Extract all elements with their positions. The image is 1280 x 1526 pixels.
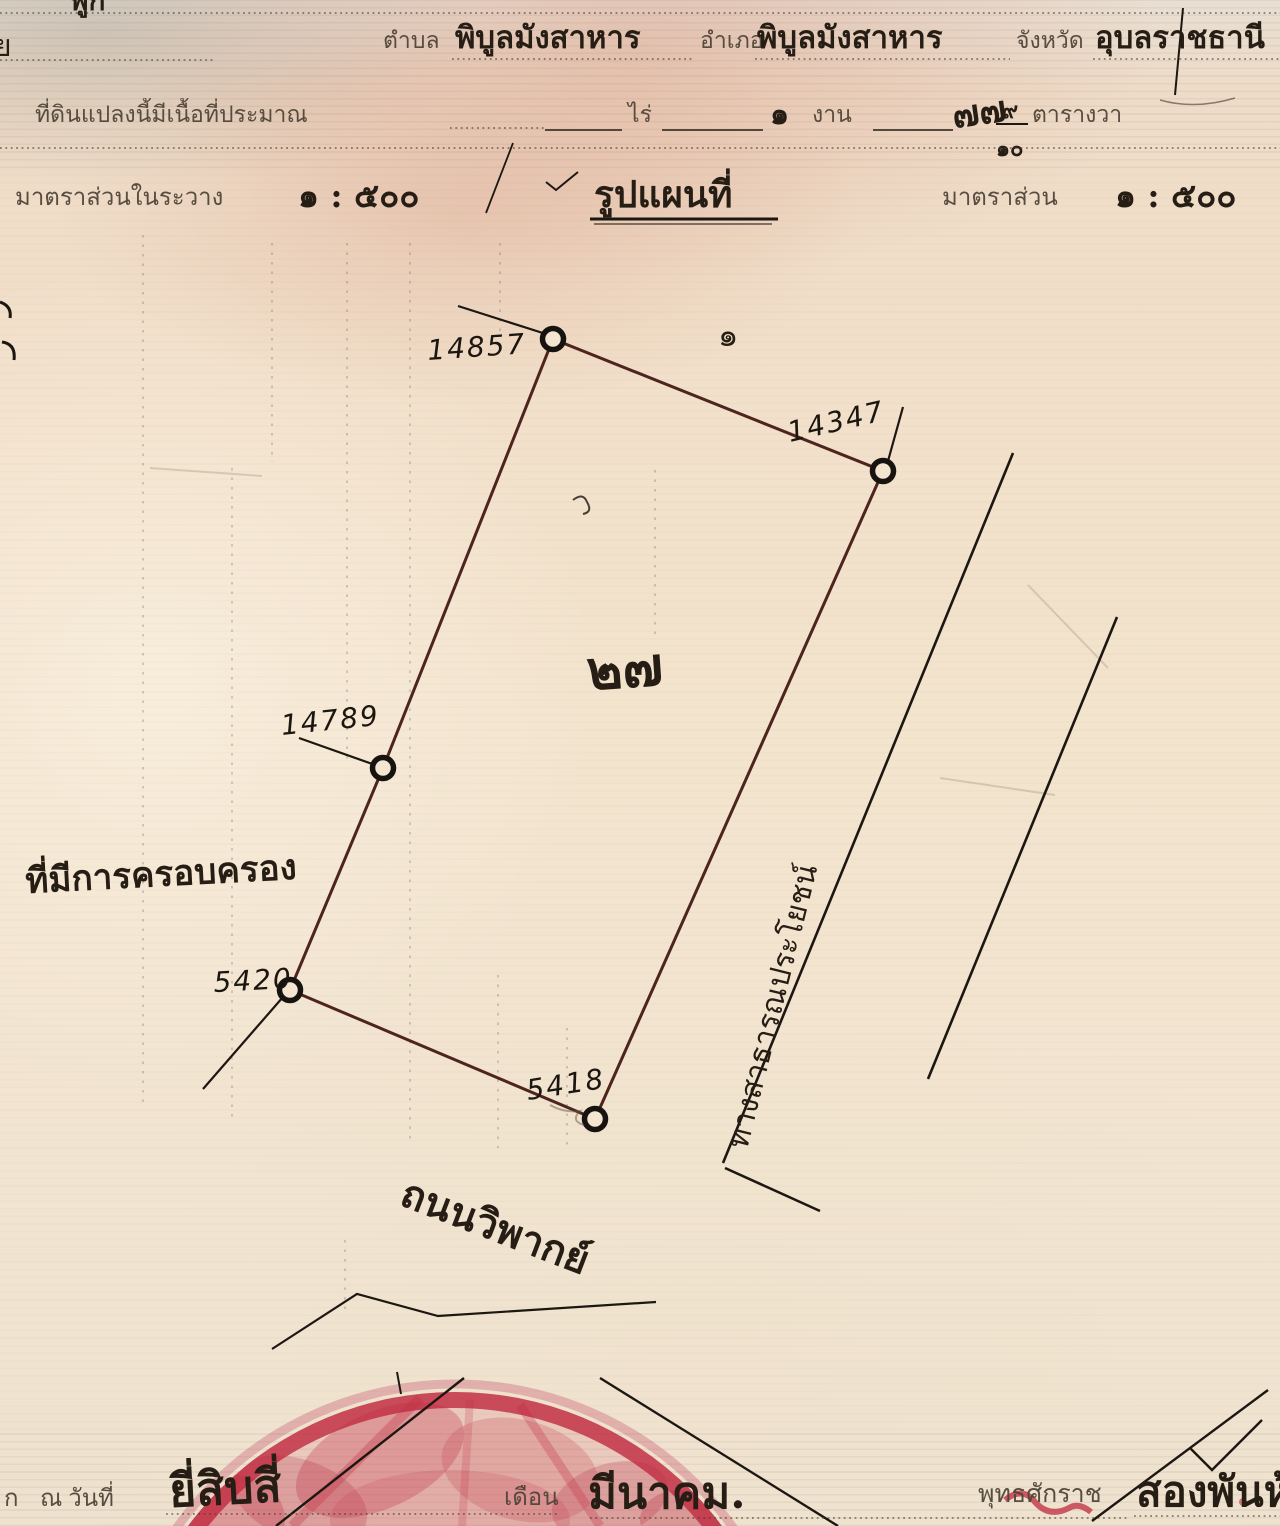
stray-slash — [486, 143, 513, 213]
scale-line: มาตราส่วนในระวาง ๑ : ๕๐๐ รูปแผนที่ มาตรา… — [15, 143, 1236, 224]
right-road-label: ทางสาธารณประโยชน์ — [720, 861, 825, 1152]
parcel: 14857 14347 14789 5420 5418 ๒๗ ๑ — [203, 306, 903, 1130]
right-road-line-2 — [928, 617, 1117, 1079]
top-clipped-text: พูก — [70, 0, 105, 18]
check-mark — [546, 172, 578, 190]
small-doodle — [573, 496, 589, 514]
year-value: สองพันห้าร้อย — [1136, 1467, 1280, 1516]
check-stroke — [1190, 1420, 1262, 1470]
tick-right — [888, 407, 903, 461]
corner-label-bottom: 5418 — [524, 1062, 607, 1107]
month-value: มีนาคม. — [588, 1468, 746, 1519]
left-margin-fragment: ย — [0, 29, 12, 64]
scale-left-label: มาตราส่วนในระวาง — [15, 183, 223, 211]
ngan-value: ๑ — [770, 97, 789, 132]
paper-crease — [1028, 585, 1108, 668]
corner-label-top: 14857 — [426, 327, 527, 367]
scale-left-value: ๑ : ๕๐๐ — [298, 176, 419, 215]
wa-label: ตารางวา — [1032, 102, 1122, 127]
parcel-number: ๒๗ — [584, 634, 664, 703]
scale-right-value: ๑ : ๕๐๐ — [1115, 176, 1236, 215]
page-title: รูปแผนที่ — [594, 168, 733, 218]
date-value: ยี่สิบสี่ — [167, 1453, 283, 1518]
era-label: พุทธศักราช — [978, 1481, 1102, 1509]
amphoe-value: พิบูลมังสาหาร — [757, 20, 943, 57]
left-edge-clipped-marks — [0, 302, 14, 360]
bottom-road-label: ถนนวิพากย์ — [394, 1169, 596, 1284]
pencil-guide-lines — [143, 235, 1108, 1310]
corner-label-right: 14347 — [784, 394, 888, 448]
corner-marker-left — [373, 758, 394, 779]
wa-fraction-denominator: ๑๐ — [996, 136, 1023, 162]
ngan-label: งาน — [812, 102, 852, 127]
changwat-label: จังหวัด — [1016, 28, 1084, 53]
road-corner-line — [725, 1168, 820, 1211]
month-label: เดือน — [504, 1484, 559, 1511]
footer-left-fragment: ก — [4, 1486, 19, 1512]
location-line: ตำบล พิบูลมังสาหาร อำเภอ พิบูลมังสาหาร จ… — [383, 20, 1280, 59]
date-label: ณ วันที่ — [40, 1481, 114, 1512]
paper-crease — [150, 468, 262, 476]
roads: ทางสาธารณประโยชน์ ถนนวิพากย์ — [272, 453, 1117, 1349]
possession-note: ที่มีการครอบครอง — [24, 842, 298, 902]
wa-value: ๗๗ — [949, 88, 1008, 137]
tick-bottom-left — [203, 997, 283, 1089]
scale-right-label: มาตราส่วน — [942, 185, 1058, 211]
rai-label: ไร่ — [626, 101, 652, 127]
stray-numeral: ๑ — [718, 316, 738, 354]
survey-roof-lines — [272, 1294, 656, 1349]
wa-fraction-numerator: ๙ — [1002, 98, 1018, 124]
corner-marker-bottom — [585, 1109, 606, 1130]
corner-marker-right — [873, 461, 894, 482]
amphoe-label: อำเภอ — [700, 28, 764, 53]
document-content: พูก ย ตำบล พิบูลมังสาหาร อำเภอ พิบูลมังส… — [0, 0, 1280, 1526]
tambon-label: ตำบล — [383, 28, 440, 53]
tick-left — [299, 738, 378, 766]
area-line: ที่ดินแปลงนี้มีเนื้อที่ประมาณ ไร่ ๑ งาน … — [0, 88, 1280, 162]
corner-marker-top — [543, 329, 564, 350]
paper-crease — [940, 778, 1055, 795]
stray-pen-curve — [1160, 98, 1235, 105]
area-label: ที่ดินแปลงนี้มีเนื้อที่ประมาณ — [35, 98, 308, 127]
deed-page: พูก ย ตำบล พิบูลมังสาหาร อำเภอ พิบูลมังส… — [0, 0, 1280, 1526]
changwat-value: อุบลราชธานี — [1095, 20, 1265, 57]
corner-label-left: 14789 — [279, 699, 381, 742]
corner-label-bottom-left: 5420 — [213, 962, 294, 999]
tambon-value: พิบูลมังสาหาร — [455, 20, 641, 57]
